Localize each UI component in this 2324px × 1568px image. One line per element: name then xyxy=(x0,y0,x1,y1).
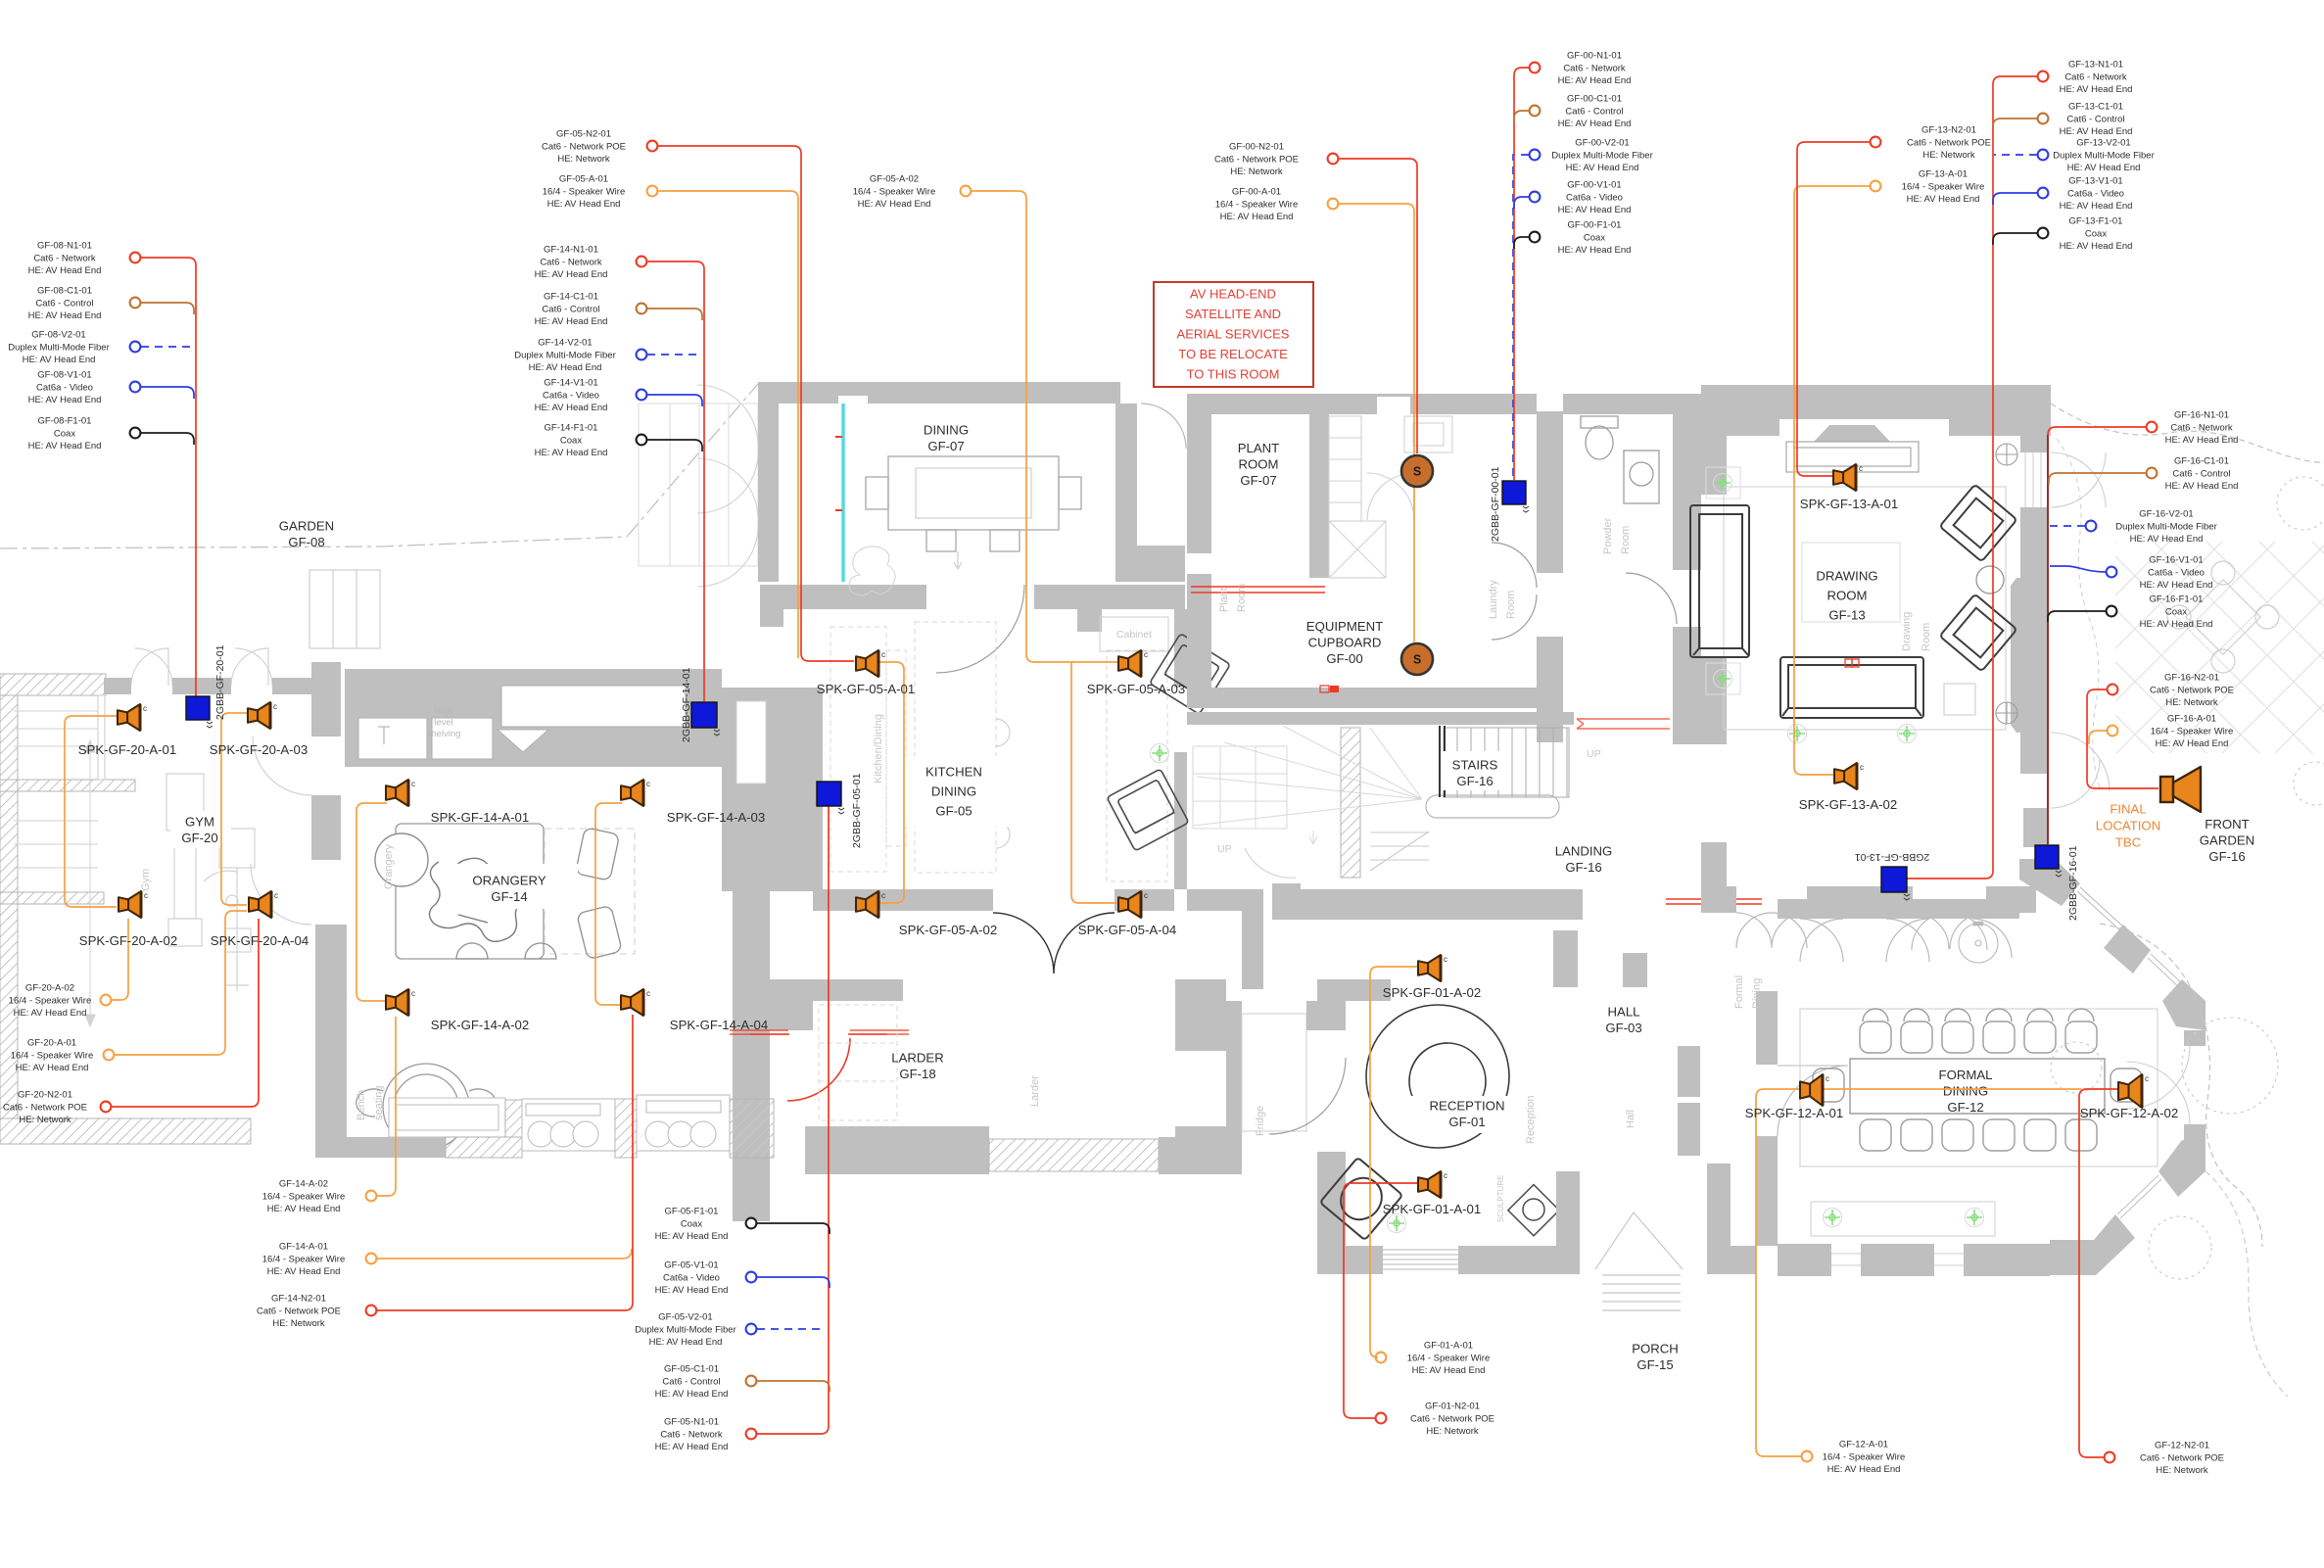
svg-text:Room: Room xyxy=(1921,623,1932,651)
svg-text:c: c xyxy=(2145,1074,2149,1083)
svg-text:PLANTROOMGF-07: PLANTROOMGF-07 xyxy=(1238,441,1280,488)
svg-text:2GBB-GF-16-01: 2GBB-GF-16-01 xyxy=(2067,845,2079,921)
svg-text:GF-14-V1-01Cat6a - VideoHE: AV: GF-14-V1-01Cat6a - VideoHE: AV Head End xyxy=(535,377,608,413)
svg-text:S: S xyxy=(1413,653,1421,667)
svg-text:c: c xyxy=(646,780,650,788)
svg-text:GF-14-C1-01Cat6 - ControlHE: A: GF-14-C1-01Cat6 - ControlHE: AV Head End xyxy=(535,291,608,327)
svg-text:GF-08-C1-01Cat6 - ControlHE: A: GF-08-C1-01Cat6 - ControlHE: AV Head End xyxy=(28,285,102,321)
svg-text:Reception: Reception xyxy=(1525,1095,1537,1144)
svg-text:Orangery: Orangery xyxy=(383,844,395,889)
svg-text:Plant: Plant xyxy=(1218,588,1230,612)
svg-text:Cabinet: Cabinet xyxy=(1116,629,1152,641)
svg-text:SPK-GF-14-A-02: SPK-GF-14-A-02 xyxy=(431,1018,529,1032)
svg-text:SPK-GF-05-A-04: SPK-GF-05-A-04 xyxy=(1078,923,1176,937)
svg-text:Gym: Gym xyxy=(140,869,152,891)
svg-text:SPK-GF-14-A-03: SPK-GF-14-A-03 xyxy=(667,810,765,825)
svg-text:SPK-GF-20-A-04: SPK-GF-20-A-04 xyxy=(211,933,308,948)
svg-text:SPK-GF-20-A-02: SPK-GF-20-A-02 xyxy=(79,933,177,948)
svg-text:sss: sss xyxy=(1973,921,1984,927)
svg-text:Bench: Bench xyxy=(356,1090,367,1120)
svg-text:Formal: Formal xyxy=(1733,975,1745,1009)
svg-text:GF-16-V1-01Cat6a - VideoHE: AV: GF-16-V1-01Cat6a - VideoHE: AV Head End xyxy=(2140,554,2213,591)
svg-text:c: c xyxy=(144,891,148,900)
svg-text:SPK-GF-05-A-01: SPK-GF-05-A-01 xyxy=(817,682,915,696)
svg-text:SPK-GF-13-A-02: SPK-GF-13-A-02 xyxy=(1799,797,1897,812)
svg-text:UP: UP xyxy=(1587,748,1601,760)
svg-text:Room: Room xyxy=(1236,584,1248,612)
svg-text:PORCHGF-15: PORCHGF-15 xyxy=(1632,1341,1679,1372)
svg-text:GF-13-N1-01Cat6 - NetworkHE: A: GF-13-N1-01Cat6 - NetworkHE: AV Head End xyxy=(2060,59,2133,95)
svg-text:SPK-GF-12-A-02: SPK-GF-12-A-02 xyxy=(2080,1106,2178,1120)
svg-text:Room: Room xyxy=(1505,591,1517,619)
svg-text:SPK-GF-14-A-04: SPK-GF-14-A-04 xyxy=(670,1018,768,1032)
svg-text:STAIRSGF-16: STAIRSGF-16 xyxy=(1452,757,1498,788)
svg-text:SPK-GF-13-A-01: SPK-GF-13-A-01 xyxy=(1800,497,1898,511)
svg-text:c: c xyxy=(1860,763,1864,772)
svg-text:S: S xyxy=(1413,465,1421,479)
svg-text:Room: Room xyxy=(1620,526,1632,554)
svg-text:Dining: Dining xyxy=(1751,978,1763,1009)
svg-text:GF-08-V1-01Cat6a - VideoHE: AV: GF-08-V1-01Cat6a - VideoHE: AV Head End xyxy=(28,369,102,405)
svg-text:c: c xyxy=(881,650,885,659)
svg-text:GF-00-C1-01Cat6 - ControlHE: A: GF-00-C1-01Cat6 - ControlHE: AV Head End xyxy=(1558,93,1632,129)
svg-text:GF-05-N1-01Cat6 - NetworkHE: A: GF-05-N1-01Cat6 - NetworkHE: AV Head End xyxy=(655,1416,729,1452)
svg-text:2GBB-GF-14-01: 2GBB-GF-14-01 xyxy=(681,667,692,742)
svg-text:Larder: Larder xyxy=(1029,1075,1041,1107)
svg-text:SPK-GF-20-A-01: SPK-GF-20-A-01 xyxy=(78,742,176,757)
svg-text:Fridge: Fridge xyxy=(1255,1106,1266,1136)
svg-text:SPK-GF-05-A-02: SPK-GF-05-A-02 xyxy=(899,923,997,937)
svg-text:seating: seating xyxy=(373,1086,385,1120)
svg-text:SPK-GF-01-A-01: SPK-GF-01-A-01 xyxy=(1383,1202,1481,1216)
svg-text:GF-00-N1-01Cat6 - NetworkHE: A: GF-00-N1-01Cat6 - NetworkHE: AV Head End xyxy=(1558,50,1632,86)
svg-text:GF-05-C1-01Cat6 - ControlHE: A: GF-05-C1-01Cat6 - ControlHE: AV Head End xyxy=(655,1363,729,1400)
svg-text:c: c xyxy=(1144,650,1148,659)
svg-text:c: c xyxy=(1444,1171,1447,1180)
svg-text:HALLGF-03: HALLGF-03 xyxy=(1605,1004,1641,1035)
svg-text:c: c xyxy=(1826,1074,1829,1083)
svg-text:GF-00-V1-01Cat6a - VideoHE: AV: GF-00-V1-01Cat6a - VideoHE: AV Head End xyxy=(1558,179,1632,215)
svg-text:c: c xyxy=(143,704,147,713)
svg-text:DININGGF-07: DININGGF-07 xyxy=(924,422,969,453)
svg-text:Powder: Powder xyxy=(1602,517,1614,554)
svg-text:GF-08-N1-01Cat6 - NetworkHE: A: GF-08-N1-01Cat6 - NetworkHE: AV Head End xyxy=(28,240,102,276)
svg-text:Laundry: Laundry xyxy=(1488,580,1499,619)
svg-text:Kitchen/Dining: Kitchen/Dining xyxy=(873,714,884,784)
svg-text:Hall: Hall xyxy=(1625,1110,1636,1128)
svg-text:c: c xyxy=(1859,464,1863,473)
svg-text:c: c xyxy=(273,702,277,711)
svg-text:c: c xyxy=(411,780,415,788)
svg-text:c: c xyxy=(411,989,415,998)
svg-text:2GBB-GF-13-01: 2GBB-GF-13-01 xyxy=(1855,851,1930,863)
svg-text:AV HEAD-ENDSATELLITE ANDAERIAL: AV HEAD-ENDSATELLITE ANDAERIAL SERVICEST… xyxy=(1177,287,1290,382)
svg-text:GF-13-C1-01Cat6 - ControlHE: A: GF-13-C1-01Cat6 - ControlHE: AV Head End xyxy=(2060,101,2133,137)
svg-text:GF-16-C1-01Cat6 - ControlHE: A: GF-16-C1-01Cat6 - ControlHE: AV Head End xyxy=(2165,455,2239,492)
svg-text:GF-05-V1-01Cat6a - VideoHE: AV: GF-05-V1-01Cat6a - VideoHE: AV Head End xyxy=(655,1259,729,1296)
svg-text:c: c xyxy=(1144,891,1148,900)
svg-text:c: c xyxy=(646,989,650,998)
svg-text:GYMGF-20: GYMGF-20 xyxy=(181,814,217,845)
svg-text:c: c xyxy=(274,891,278,900)
svg-text:GF-16-N1-01Cat6 - NetworkHE: A: GF-16-N1-01Cat6 - NetworkHE: AV Head End xyxy=(2165,409,2239,446)
svg-text:2GBB-GF-00-01: 2GBB-GF-00-01 xyxy=(1490,466,1501,542)
svg-text:SPK-GF-14-A-01: SPK-GF-14-A-01 xyxy=(431,810,529,825)
svg-text:UP: UP xyxy=(1217,843,1232,855)
svg-text:SPK-GF-01-A-02: SPK-GF-01-A-02 xyxy=(1383,985,1481,1000)
svg-text:2GBB-GF-20-01: 2GBB-GF-20-01 xyxy=(214,644,226,720)
svg-text:SCULPTURE: SCULPTURE xyxy=(1496,1175,1505,1222)
svg-text:2GBB-GF-05-01: 2GBB-GF-05-01 xyxy=(851,773,863,848)
svg-text:Drawing: Drawing xyxy=(1901,612,1913,651)
svg-text:SPK-GF-20-A-03: SPK-GF-20-A-03 xyxy=(210,742,308,757)
svg-text:GF-13-V1-01Cat6a - VideoHE: AV: GF-13-V1-01Cat6a - VideoHE: AV Head End xyxy=(2060,175,2133,212)
svg-text:c: c xyxy=(881,891,885,900)
svg-text:SPK-GF-05-A-03: SPK-GF-05-A-03 xyxy=(1087,682,1185,696)
svg-text:c: c xyxy=(1444,955,1447,964)
svg-text:GF-14-N1-01Cat6 - NetworkHE: A: GF-14-N1-01Cat6 - NetworkHE: AV Head End xyxy=(535,244,608,280)
svg-text:SPK-GF-12-A-01: SPK-GF-12-A-01 xyxy=(1745,1106,1843,1120)
